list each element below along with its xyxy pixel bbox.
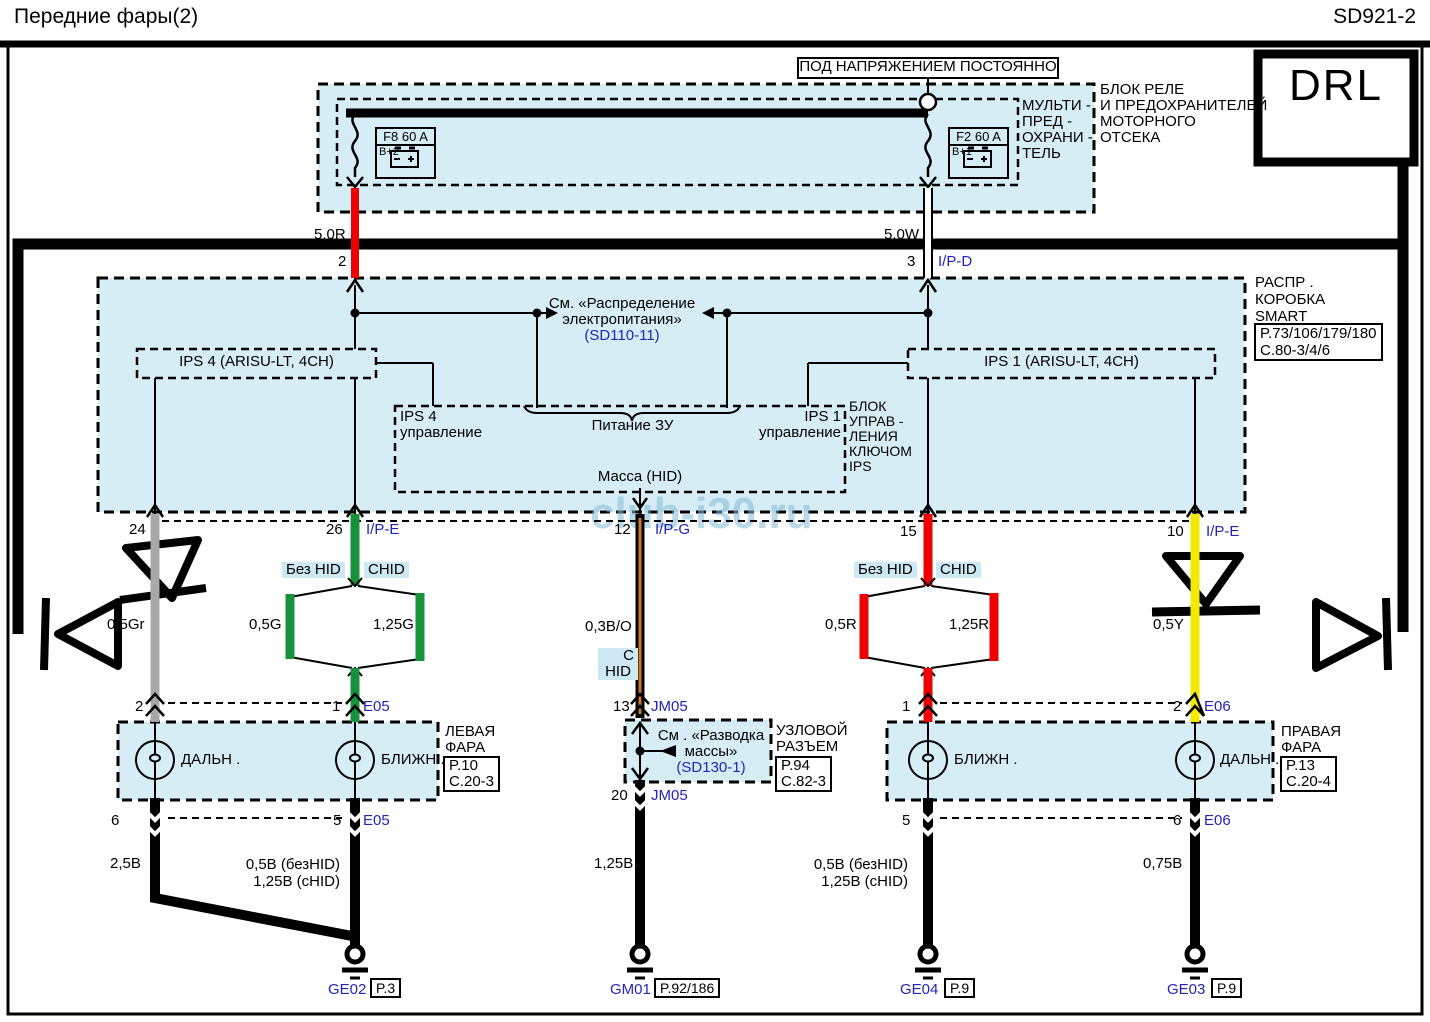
connector-e06-bottom: E06 [1204,813,1231,829]
fuse-f2-name: F2 60 A [950,129,1007,146]
connector-e05-bottom: E05 [363,813,390,829]
connector-ipe-left: I/P-E [366,522,399,538]
wire-label-5-0W: 5.0W [884,227,919,243]
ips-key-block-name: БЛОКУПРАВ - ЛЕНИЯКЛЮЧОМ IPS [849,399,912,474]
ground-ge03: GE03 [1167,982,1205,998]
junction-name: УЗЛОВОЙРАЗЪЕМ [776,723,848,755]
see-ground-distribution: См . «Разводкамассы» (SD130-1) [655,728,767,776]
page-title: Передние фары(2) [14,9,198,25]
wiring-diagram-page: club-i30.ru [0,0,1430,1022]
wire-label-left-low: 0,5B (безHID)1,25B (cHID) [210,856,340,890]
ground-ge04: GE04 [900,982,938,998]
pin-left-2: 2 [135,699,143,715]
ips1-control-label: IPS 1управление [753,409,841,441]
pin-left-1: 1 [332,699,340,715]
pin-15: 15 [900,524,917,540]
page-code: SD921-2 [1333,9,1416,25]
power-state-label: ПОД НАПРЯЖЕНИЕМ ПОСТОЯННО [797,57,1059,79]
drl-label: DRL [1258,78,1414,94]
connector-ipe-right: I/P-E [1206,524,1239,540]
left-lamp-ref: P.10C.20-3 [443,756,500,792]
pin-right-1: 1 [902,699,910,715]
left-lamp-name: ЛЕВАЯФАРА [445,724,495,756]
smart-box-ref: P.73/106/179/180C.80-3/4/6 [1254,323,1383,361]
multifuse-label: МУЛЬТИ -ПРЕД - ОХРАНИ -ТЕЛЬ [1022,98,1093,162]
connector-ipd: I/P-D [938,254,972,270]
ips4-control-label: IPS 4управление [400,409,482,441]
bulb-label-low-right: БЛИЖН . [954,752,1018,768]
pin-right-2: 2 [1173,699,1181,715]
fuse-f2-terminal: B+1 [950,146,1007,158]
right-lamp-name: ПРАВАЯФАРА [1281,724,1341,756]
wire-label-right-low: 0,5B (безHID)1,25B (cHID) [778,856,908,890]
bulb-label-high-left: ДАЛЬН . [181,752,240,768]
pin-13: 13 [613,699,630,715]
ground-ge02: GE02 [328,982,366,998]
wire-label-gray: 0,5Gr [107,617,145,633]
tag-hid-right: CHID [936,562,981,578]
ground-symbols [342,946,1208,978]
ground-gm01: GM01 [610,982,651,998]
wire-label-05Y: 0,5Y [1153,617,1184,633]
smart-box-name: РАСПР .КОРОБКА SMART [1255,274,1325,325]
ips1-label: IPS 1 (ARISU-LT, 4CH) [908,354,1215,370]
pin-26: 26 [326,522,343,538]
wire-label-125B: 1,25B [594,856,633,872]
wire-label-125G: 1,25G [373,617,414,633]
tag-hid-left: CHID [364,562,409,578]
wire-label-25B: 2,5B [110,856,141,872]
connector-e05-top: E05 [363,699,390,715]
wire-label-03BO: 0,3B/O [585,619,632,635]
ips4-label: IPS 4 (ARISU-LT, 4CH) [137,354,376,370]
ground-ge04-ref: P.9 [944,978,975,998]
connector-jm05-bottom: JM05 [651,788,688,804]
fuse-f2: F2 60 A B+1 [948,127,1009,179]
bulb-label-high-right: ДАЛЬН . [1220,752,1279,768]
right-headlamp-block [887,722,1273,800]
pin-2: 2 [338,254,346,270]
pin-right-6: 6 [1173,813,1181,829]
connector-jm05-top: JM05 [651,699,688,715]
wire-label-05R: 0,5R [825,617,857,633]
junction-ref: P.94C.82-3 [775,756,832,792]
pin-12: 12 [614,522,631,538]
connector-e06-top: E06 [1204,699,1231,715]
pin-left-5: 5 [333,813,341,829]
power-node [920,94,936,110]
tag-no-hid-left: Без HID [282,562,345,578]
tag-no-hid-right: Без HID [854,562,917,578]
ground-ge03-ref: P.9 [1211,978,1242,998]
pin-24: 24 [129,522,146,538]
pin-20: 20 [611,788,628,804]
fuse-f8-name: F8 60 A [377,129,434,146]
ground-gm01-ref: P.92/186 [654,978,720,998]
pin-left-6: 6 [111,813,119,829]
tag-c-hid: CHID [598,648,638,680]
right-lamp-ref: P.13C.20-4 [1280,756,1337,792]
mass-hid-label: Масса (HID) [583,469,697,485]
bulb-label-low-left: БЛИЖН . [381,752,445,768]
pin-right-5: 5 [902,813,910,829]
pin-10: 10 [1167,524,1184,540]
drl-diode-symbols [44,540,1388,670]
ground-ge02-ref: P.3 [370,978,401,998]
pin-3: 3 [907,254,915,270]
engine-fusebox-name: БЛОК РЕЛЕИ ПРЕДОХРАНИТЕЛЕЙ МОТОРНОГООТСЕ… [1100,82,1267,146]
wire-label-5-0R: 5.0R [314,227,346,243]
supply-label: Питание ЗУ [570,418,695,434]
wire-label-125R: 1,25R [949,617,989,633]
wire-label-075B: 0,75B [1143,856,1182,872]
fuse-f8-terminal: B+2 [377,146,434,158]
wire-label-05G: 0,5G [249,617,282,633]
fuse-f8: F8 60 A B+2 [375,127,436,179]
connector-ipg: I/P-G [655,522,690,538]
see-power-distribution: См. «Распределениеэлектропитания» (SD110… [532,296,712,344]
